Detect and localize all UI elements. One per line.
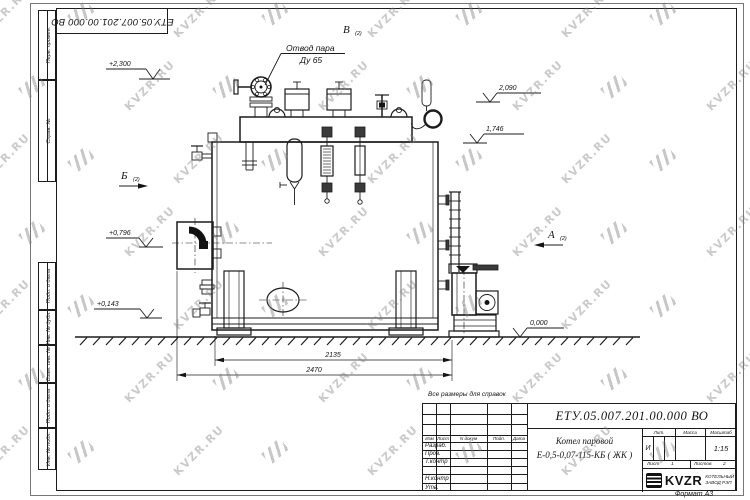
drawing-sheet: Перв. примен. Справ. № Подп. и дата Инв.… [0, 0, 750, 500]
view-label-a: А (2) [534, 229, 567, 248]
view-letter-a: А [547, 229, 555, 241]
elevation-label: 0,000 [530, 320, 548, 327]
elevation-label: +0,796 [109, 230, 131, 237]
steam-outlet-callout: Отвод пара Ду 65 [265, 43, 345, 85]
ladder [449, 192, 461, 272]
boiler-drawing: Отвод пара Ду 65 [0, 0, 750, 500]
elevation-mark-0000: 0,000 [513, 320, 564, 337]
view-label-b: Б (2) [119, 170, 148, 189]
elevation-label: +2,300 [109, 61, 131, 68]
safety-valve-2 [327, 82, 351, 117]
elevation-mark-0796: +0,796 [106, 230, 163, 247]
elevation-label: 1,746 [486, 126, 504, 133]
left-wall-valve [191, 146, 212, 160]
elevation-label: +0,143 [97, 301, 119, 308]
view-label-v: В (2) [343, 24, 362, 37]
elevation-mark-2300: +2,300 [106, 61, 170, 79]
view-sheet-ref: (2) [355, 31, 362, 37]
ground-line [75, 337, 640, 345]
elevation-mark-0143: +0,143 [94, 301, 162, 318]
fan-unit [449, 264, 499, 337]
view-sheet-ref: (2) [133, 177, 140, 183]
right-wall-nozzles [438, 195, 449, 290]
drain-valve [193, 303, 211, 317]
elevation-mark-1746: 1,746 [463, 126, 524, 143]
view-letter-b: Б [120, 170, 128, 182]
pressure-gauge [412, 80, 442, 129]
elevation-label: 2,090 [498, 85, 517, 92]
support-leg-right [389, 271, 423, 335]
callout-text-line1: Отвод пара [286, 43, 335, 53]
drum-vent-valve [375, 95, 389, 117]
safety-valve-1 [285, 82, 309, 117]
boiler-body [208, 133, 438, 330]
burner-unit [172, 218, 272, 273]
water-gauge-1 [280, 139, 302, 205]
callout-text-line2: Ду 65 [299, 55, 322, 65]
view-letter-v: В [343, 24, 350, 36]
dimension-label: 2135 [324, 352, 341, 359]
lifting-lug-right [391, 107, 407, 117]
water-gauge-2 [321, 127, 333, 203]
lifting-lug-left [269, 107, 285, 117]
view-sheet-ref: (2) [560, 236, 567, 242]
dimension-label: 2470 [305, 367, 322, 374]
steam-drum [240, 117, 412, 170]
elevation-mark-2090: 2,090 [476, 85, 541, 102]
support-leg-left [217, 271, 251, 335]
manhole [259, 282, 307, 318]
water-gauge-3 [355, 127, 365, 204]
